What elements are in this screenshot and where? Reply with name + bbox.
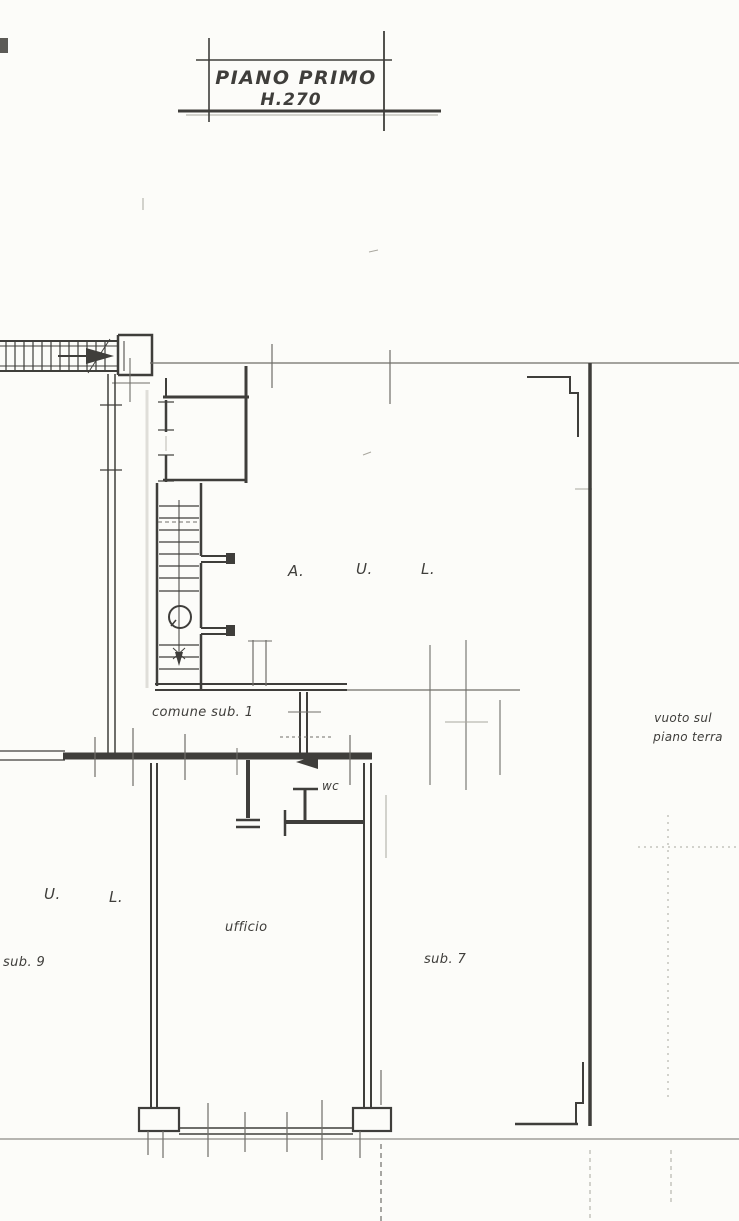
title-block: PIANO PRIMO H.270 [178,31,441,131]
room-label-comune: comune sub. 1 [152,705,253,720]
survey-ticks [430,640,500,790]
external-stair [0,335,152,402]
floor-plan-drawing: PIANO PRIMO H.270 [0,0,739,1221]
room-label-ufficio: ufficio [225,920,268,935]
aul-room-labels: A. U. L. [287,560,435,580]
room-label-wc: wc [322,779,339,793]
upper-room [158,366,249,483]
ufficio-room: ufficio [151,763,386,1108]
plan-height-note: H.270 [260,90,321,110]
wc-partition: wc [236,760,364,836]
stair-up-arrow-icon [86,348,114,364]
bottom-left-pier [139,1108,179,1131]
room-label-aul-a: A. [287,562,304,580]
room-label-ul-u: U. [44,885,61,903]
label-vuoto-line1: vuoto sul [654,711,712,725]
section-lines [0,1139,739,1221]
room-label-sub7: sub. 7 [424,952,467,967]
room-label-ul-l: L. [109,888,123,906]
bottom-wall-windows [139,1070,391,1160]
left-room-labels: U. L. sub. 9 [3,885,123,970]
floor-plan-sheet: PIANO PRIMO H.270 [0,0,739,1221]
label-vuoto-line2: piano terra [652,730,723,744]
stair-landing [118,335,152,375]
plan-outline [100,344,739,1126]
plan-title: PIANO PRIMO [215,67,377,89]
void-area: vuoto sul piano terra [638,711,737,1100]
room-label-sub9: sub. 9 [3,955,45,970]
bottom-right-pier [353,1108,391,1131]
room-label-aul-l: L. [421,560,435,578]
room-label-aul-u: U. [356,560,373,578]
